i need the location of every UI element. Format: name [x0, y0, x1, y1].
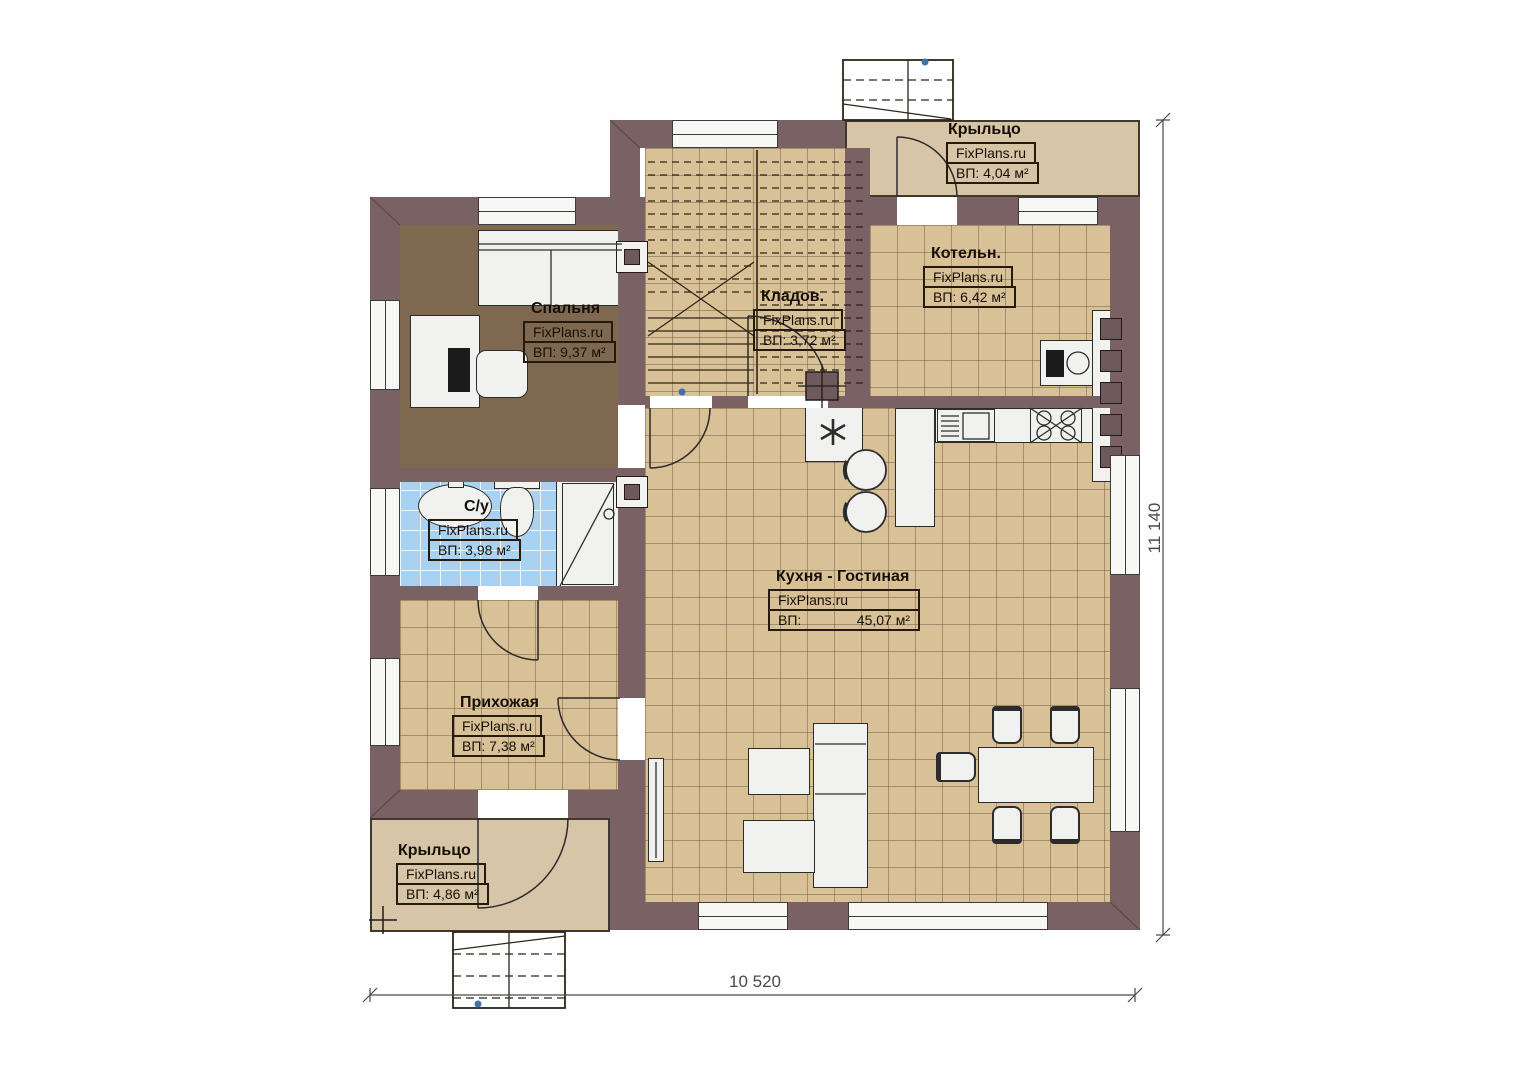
brand-box: FixPlans.ru	[753, 309, 843, 331]
window-boiler-top	[1018, 197, 1098, 225]
area-box: ВП: 3,98 м²	[428, 539, 521, 561]
stair-storage-floor	[645, 148, 868, 396]
area-box: ВП: 4,86 м²	[396, 883, 489, 905]
dining-chair	[1050, 706, 1080, 744]
room-title: Крыльцо	[398, 842, 489, 860]
wall-cabinet	[1100, 350, 1122, 372]
duct-core	[624, 484, 640, 500]
room-title: Прихожая	[460, 694, 545, 712]
floor-plan-canvas: Спальня FixPlans.ru ВП: 9,37 м² С/у FixP…	[0, 0, 1528, 1080]
window-bedroom-top	[478, 197, 576, 225]
radiator	[648, 758, 664, 862]
room-title: Котельн.	[931, 245, 1016, 263]
area-box: ВП: 7,38 м²	[452, 735, 545, 757]
area-box: ВП: 6,42 м²	[923, 286, 1016, 308]
room-label-kitchen-living: Кухня - Гостиная FixPlans.ru ВП: 45,07 м…	[768, 568, 920, 631]
desk-chair	[476, 350, 528, 398]
heater-panel	[1046, 350, 1064, 377]
brand-box: FixPlans.ru	[923, 266, 1013, 288]
bed	[478, 230, 622, 306]
wall-kitchen-left-lower	[610, 790, 645, 930]
window-kitchen-right	[1110, 455, 1140, 575]
door-gap-bathroom	[478, 586, 538, 600]
partition-stair-boiler	[845, 148, 870, 408]
window-stair-top	[672, 120, 778, 148]
dining-chair	[936, 752, 976, 782]
monitor	[448, 348, 470, 392]
fridge	[805, 402, 863, 462]
door-gap-hallway	[618, 698, 645, 760]
door-gap-corridor	[650, 396, 712, 408]
window-dining-right	[1110, 688, 1140, 832]
room-title: С/у	[464, 498, 521, 516]
door-gap-storage	[748, 396, 828, 408]
door-gap-bedroom	[618, 405, 645, 468]
door-gap-porch-top	[897, 197, 957, 225]
window-bedroom-left	[370, 300, 400, 390]
area-box: ВП: 4,04 м²	[946, 162, 1039, 184]
duct-core	[624, 249, 640, 265]
brand-box: FixPlans.ru	[768, 589, 920, 611]
dining-chair	[1050, 806, 1080, 844]
area-value: 45,07 м²	[857, 612, 910, 628]
sofa-seat	[743, 820, 815, 873]
area-box: ВП: 45,07 м²	[768, 609, 920, 631]
door-gap-entrance	[478, 790, 568, 818]
exterior-steps-top	[843, 59, 953, 121]
room-label-bedroom: Спальня FixPlans.ru ВП: 9,37 м²	[523, 300, 616, 363]
partition-boiler-kitchen	[870, 396, 1110, 408]
room-label-boiler: Котельн. FixPlans.ru ВП: 6,42 м²	[923, 245, 1016, 308]
wall-cabinet	[1100, 382, 1122, 404]
coffee-table	[748, 748, 810, 795]
kitchen-sink-unit	[937, 409, 995, 442]
room-title: Крыльцо	[948, 121, 1039, 139]
room-title: Кухня - Гостиная	[776, 568, 920, 586]
room-label-bathroom: С/у FixPlans.ru ВП: 3,98 м²	[428, 498, 521, 561]
dining-chair	[992, 706, 1022, 744]
window-hall-left	[370, 658, 400, 746]
dimension-width: 10 520	[700, 972, 810, 992]
sofa-chaise	[813, 723, 868, 888]
room-label-porch-top: Крыльцо FixPlans.ru ВП: 4,04 м²	[946, 121, 1039, 184]
exterior-steps-bottom	[453, 932, 565, 1008]
partition-bed-bath	[400, 468, 618, 482]
kitchen-island	[895, 408, 935, 527]
area-box: ВП: 9,37 м²	[523, 341, 616, 363]
room-label-hallway: Прихожая FixPlans.ru ВП: 7,38 м²	[452, 694, 545, 757]
brand-box: FixPlans.ru	[946, 142, 1036, 164]
brand-box: FixPlans.ru	[523, 321, 613, 343]
dining-chair	[992, 806, 1022, 844]
brand-box: FixPlans.ru	[452, 715, 542, 737]
room-label-storage: Кладов. FixPlans.ru ВП: 3,72 м²	[753, 288, 846, 351]
brand-box: FixPlans.ru	[396, 863, 486, 885]
window-bath-left	[370, 488, 400, 576]
window-bottom-2	[848, 902, 1048, 930]
stove	[1030, 408, 1082, 443]
brand-box: FixPlans.ru	[428, 519, 518, 541]
wall-cabinet	[1100, 318, 1122, 340]
wall-cabinet	[1100, 414, 1122, 436]
area-prefix: ВП:	[778, 612, 801, 628]
dimension-height: 11 140	[1145, 473, 1165, 583]
room-label-porch-bottom: Крыльцо FixPlans.ru ВП: 4,86 м²	[396, 842, 489, 905]
dining-table	[978, 747, 1094, 803]
room-title: Кладов.	[761, 288, 846, 306]
window-bottom-1	[698, 902, 788, 930]
shower-tray	[562, 483, 614, 585]
kitchen-living-floor	[645, 408, 1110, 902]
area-box: ВП: 3,72 м²	[753, 329, 846, 351]
room-title: Спальня	[531, 300, 616, 318]
